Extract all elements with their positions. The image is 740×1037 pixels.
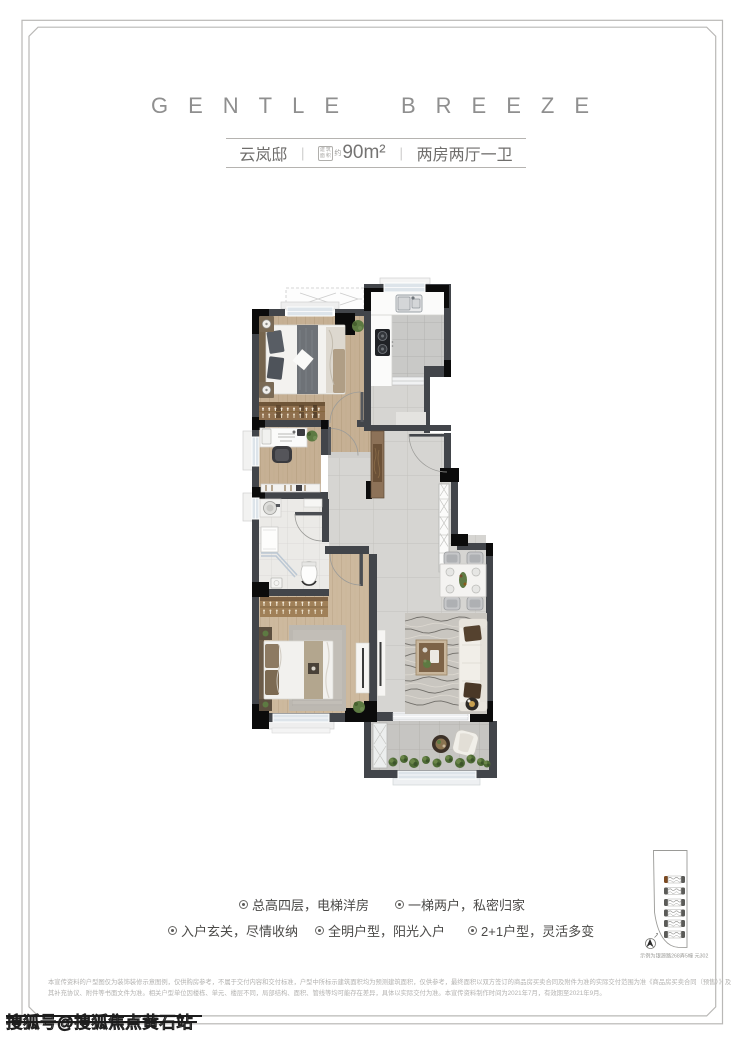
- svg-text:示例为银源路268弄5幢 元302: 示例为银源路268弄5幢 元302: [640, 952, 708, 960]
